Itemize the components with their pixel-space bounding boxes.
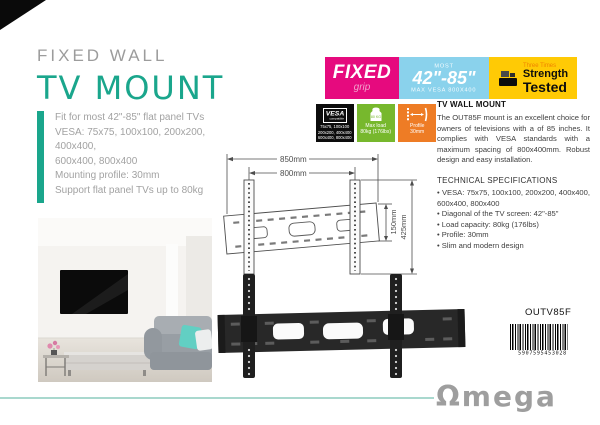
product-info: TV WALL MOUNT The OUT85F mount is an exc… [437, 100, 590, 252]
header-subtitle: FIXED WALL [37, 46, 224, 66]
vesa-compatibility-badge: VESA compatible 75x75, 100x100 200x200, … [316, 104, 354, 142]
badge-fixed-label: FIXED [333, 64, 391, 82]
feature-list: Fit for most 42"-85" flat panel TVs VESA… [37, 111, 205, 203]
badge-size-top: MOST [434, 63, 453, 69]
weight-icon-text: 80 KG [371, 115, 381, 119]
vesa-sizes: 75x75, 100x100 200x200, 400x400 600x400,… [310, 125, 359, 142]
page-title: TV MOUNT [37, 69, 224, 107]
specs-list: VESA: 75x75, 100x100, 200x200, 400x400, … [437, 188, 590, 252]
footer-divider [0, 397, 434, 399]
model-number: OUTV85F [525, 307, 571, 318]
brand-logo: Ωmega [436, 380, 557, 413]
badge-size-label: 42"-85" [412, 70, 475, 87]
badge-strength-top: Three Times [523, 63, 556, 69]
spec-item: Load capacity: 80kg (176lbs) [437, 220, 590, 231]
feature-line: VESA: 75x75, 100x100, 200x200, [55, 126, 205, 141]
product-render [215, 268, 470, 384]
feature-line: Support flat panel TVs up to 80kg [55, 184, 205, 199]
dim-800: 800mm [280, 169, 307, 178]
feature-line: 400x400, [55, 140, 205, 155]
badge-strength-line2: Tested [523, 80, 567, 94]
barcode-digits: 5907595453028 [518, 350, 560, 356]
icon-badge-row: VESA compatible 75x75, 100x100 200x200, … [316, 104, 436, 142]
sofa [144, 316, 212, 370]
product-description: The OUT85F mount is an excellent choice … [437, 113, 590, 166]
badge-fixed-sub: grip [354, 83, 371, 93]
badge-strength-tested: Three Times Strength Tested [489, 57, 577, 99]
corner-accent-triangle [0, 0, 46, 30]
dim-150: 150mm [389, 209, 398, 234]
feature-line: 600x400, 800x400 [55, 155, 205, 170]
product-heading: TV WALL MOUNT [437, 100, 590, 109]
feature-accent-bar [37, 111, 44, 203]
badge-size-sub: MAX VESA 800X400 [411, 87, 476, 93]
badge-screen-size: MOST 42"-85" MAX VESA 800X400 [399, 57, 489, 99]
badge-row: FIXED grip MOST 42"-85" MAX VESA 800X400… [325, 57, 577, 99]
feature-lines: Fit for most 42"-85" flat panel TVs VESA… [55, 111, 205, 203]
room-photo [38, 218, 212, 382]
spec-item: VESA: 75x75, 100x100, 200x200, 400x400, … [437, 188, 590, 209]
barcode: 5907595453028 [510, 324, 568, 358]
max-load-badge: 80 KG Max load 80kg (176lbs) [357, 104, 395, 142]
profile-badge: Profile 30mm [398, 104, 436, 142]
badge-fixed-grip: FIXED grip [325, 57, 399, 99]
package-sheet: FIXED WALL TV MOUNT Fit for most 42"-85"… [0, 0, 600, 425]
specs-heading: TECHNICAL SPECIFICATIONS [437, 176, 590, 185]
spec-item: Diagonal of the TV screen: 42"-85" [437, 209, 590, 220]
dim-425: 425mm [399, 214, 408, 239]
spec-item: Profile: 30mm [437, 230, 590, 241]
barcode-bars [510, 324, 568, 350]
strength-press-icon [498, 69, 518, 87]
dim-850: 850mm [280, 155, 307, 164]
profile-label: Profile 30mm [408, 123, 426, 135]
header: FIXED WALL TV MOUNT [37, 46, 224, 107]
spec-item: Slim and modern design [437, 241, 590, 252]
feature-line: Mounting profile: 30mm [55, 169, 205, 184]
feature-line: Fit for most 42"-85" flat panel TVs [55, 111, 205, 126]
depth-arrow-icon [405, 107, 429, 122]
vesa-logo: VESA compatible [323, 108, 347, 123]
max-load-label: Max load 80kg (176lbs) [356, 123, 395, 135]
weight-icon: 80 KG [367, 107, 385, 122]
